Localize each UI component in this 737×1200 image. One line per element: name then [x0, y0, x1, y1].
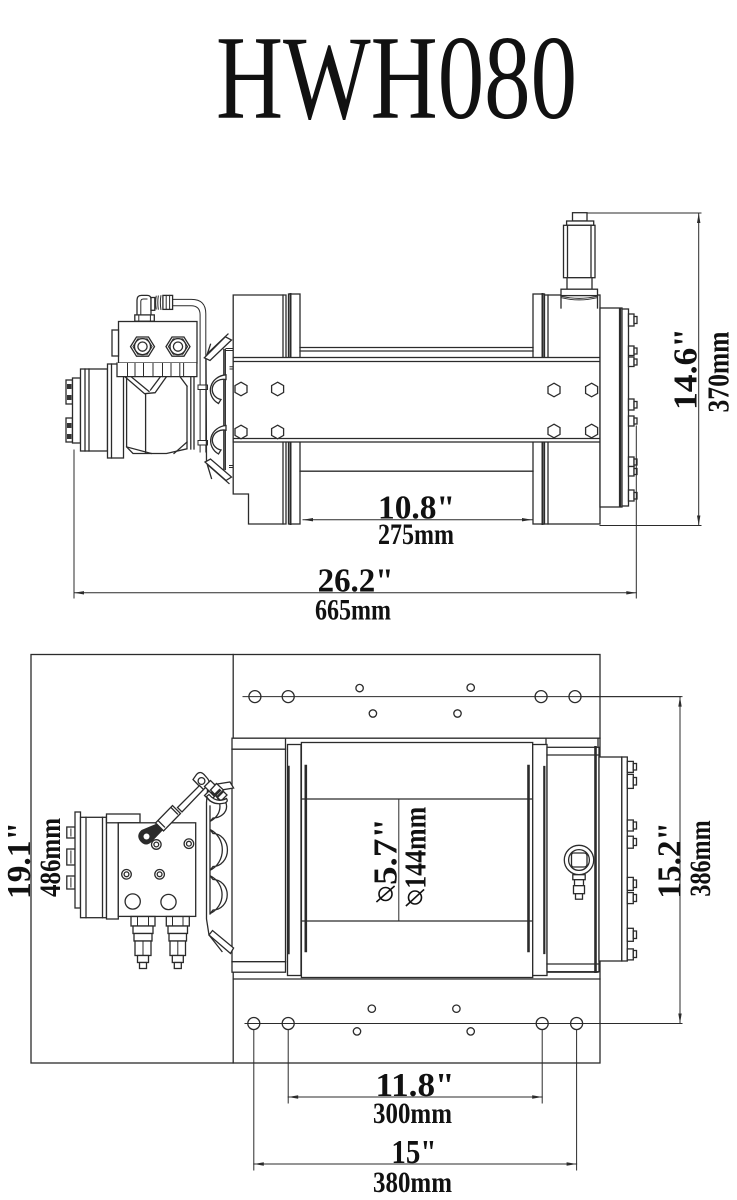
- svg-text:380mm: 380mm: [373, 1166, 452, 1199]
- svg-text:19.1": 19.1": [1, 822, 38, 899]
- svg-text:300mm: 300mm: [373, 1097, 452, 1130]
- svg-text:370mm: 370mm: [701, 331, 736, 412]
- svg-text:HWH080: HWH080: [216, 11, 577, 144]
- svg-text:144mm: 144mm: [398, 807, 433, 889]
- svg-text:486mm: 486mm: [34, 818, 67, 897]
- svg-text:275mm: 275mm: [378, 518, 454, 551]
- svg-text:386mm: 386mm: [684, 820, 717, 896]
- svg-text:14.6": 14.6": [668, 328, 705, 410]
- svg-text:665mm: 665mm: [315, 594, 391, 627]
